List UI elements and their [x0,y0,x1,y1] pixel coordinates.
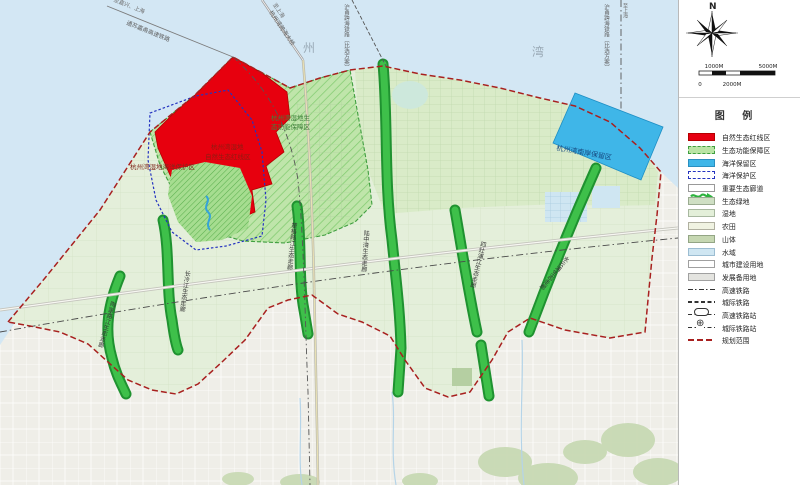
legend-row: 高速铁路 [688,283,796,296]
hsr-station-icon [694,308,709,316]
legend-row: 海洋保护区 [688,169,796,182]
eco-function-zone-label-2: 态功能保障区 [271,122,311,131]
legend-swatch-nature-redline [688,133,715,141]
legend-label: 生态绿地 [722,196,750,206]
planning-map-screenshot: 州 湾 至嘉兴、上海 通苏嘉甬高速铁路 至上海 杭州湾跨海大桥 沪甬跨海铁路（比… [0,0,800,485]
legend-label: 规划范围 [722,335,750,345]
legend-label: 农田 [722,221,736,231]
legend-row: 自然生态红线区 [688,131,796,144]
scale-label-0: 0 [698,82,702,88]
legend-row: 重要生态廊道 [688,182,796,195]
legend-swatch-hsr-line [688,286,715,294]
legend-row: 山体 [688,233,796,246]
scale-label-2000m: 2000M [723,82,742,88]
red-line-zone-label-2: 自然生态红线区 [205,152,251,161]
scale-label-1000m: 1000M [705,64,724,70]
legend-label: 海洋保留区 [722,158,756,168]
scale-bar: 1000M 5000M 0 2000M [691,58,795,92]
huyong-west-label: 沪甬跨海铁路（比选方案） [343,3,350,70]
legend-swatch-marine-reserve [688,159,715,167]
legend-label: 发展备用地 [722,272,756,282]
legend-swatch-mountain [688,235,715,243]
legend-row: 水域 [688,245,796,258]
green-patch [452,368,472,386]
legend-row: 规划范围 [688,334,796,347]
legend-swatch-intercity-station: ⊕ [688,324,715,332]
marine-protected-label: 杭州湾湿地海洋保护区 [130,162,196,171]
legend-row: 城市建设用地 [688,258,796,271]
legend-label: 高速铁路站 [722,310,756,320]
legend-swatch-urban [688,260,715,268]
map-canvas: 州 湾 至嘉兴、上海 通苏嘉甬高速铁路 至上海 杭州湾跨海大桥 沪甬跨海铁路（比… [0,0,678,485]
legend-swatch-intercity-line [688,298,715,306]
legend-label: 山体 [722,234,736,244]
scale-label-5000m: 5000M [759,64,778,70]
legend-label: 海洋保护区 [722,170,756,180]
compass-rose-icon [682,11,742,59]
legend-swatch-wetland [688,209,715,217]
legend-swatch-eco-function [688,146,715,154]
legend-row: 生态功能保障区 [688,144,796,157]
legend-panel: N 1000M 5000M 0 2000M [678,0,800,485]
legend-label: 城际铁路 [722,297,750,307]
huyong-east-label: 沪甬跨海铁路（比选方案） [603,3,610,70]
to-shanghai-label: 至上海 [622,3,628,19]
legend-label: 城市建设用地 [722,259,763,269]
legend-swatch-reserve-land [688,273,715,281]
legend-swatch-eco-corridor [688,184,715,192]
legend-label: 水域 [722,247,736,257]
creek-wetland [392,81,428,109]
legend-label: 高速铁路 [722,285,750,295]
legend-swatch-farmland [688,222,715,230]
red-line-zone-label-1: 杭州湾湿地 [211,142,244,151]
legend-row: 发展备用地 [688,271,796,284]
legend-row: 农田 [688,220,796,233]
sea-name-char: 湾 [532,44,544,59]
legend-label: 城际铁路站 [722,323,756,333]
legend-label: 生态功能保障区 [722,145,770,155]
legend-swatch-eco-green [688,197,715,205]
legend-label: 重要生态廊道 [722,183,763,193]
legend-swatch-plan-boundary [688,336,715,344]
legend: 图 例 自然生态红线区 生态功能保障区 海洋保留区 海洋保护区 重要生态廊道 生… [679,98,800,347]
legend-row: 海洋保留区 [688,156,796,169]
legend-row: 湿地 [688,207,796,220]
sea-name-char: 州 [303,41,315,55]
legend-swatch-marine-protected [688,171,715,179]
legend-title: 图 例 [688,107,786,122]
eco-function-zone-label-1: 杭州湾湿地生 [271,113,311,122]
legend-row: 生态绿地 [688,194,796,207]
legend-row: 城际铁路 [688,296,796,309]
legend-label: 湿地 [722,208,736,218]
legend-row: ⊕城际铁路站 [688,321,796,334]
compass-area: N 1000M 5000M 0 2000M [679,0,800,98]
legend-label: 自然生态红线区 [722,132,770,142]
legend-swatch-water [688,248,715,256]
intercity-station-icon: ⊕ [696,319,704,329]
